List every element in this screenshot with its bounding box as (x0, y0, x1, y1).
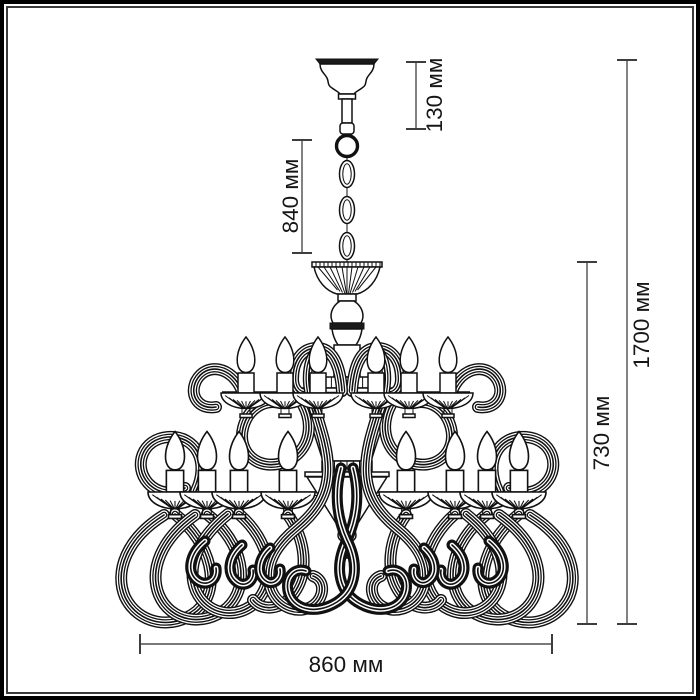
dimension-label-1700: 1700 мм (629, 281, 654, 368)
diagram-page: 130 мм 840 мм 1700 мм 730 мм 860 мм (0, 0, 700, 700)
dimension-diameter: 860 мм (140, 634, 552, 677)
dimension-label-730: 730 мм (589, 396, 614, 471)
dimension-suspension-length: 840 мм (278, 140, 312, 253)
dimension-fixture-height: 730 мм (577, 262, 614, 624)
ribbed-bowl (312, 262, 382, 294)
suspension-assembly (312, 59, 382, 377)
canopy-bell (320, 64, 374, 94)
dimension-label-860: 860 мм (309, 652, 384, 677)
dimension-label-130: 130 мм (422, 58, 447, 133)
chain (340, 161, 355, 260)
hanging-ring (337, 136, 358, 157)
dimension-overall-height: 1700 мм (617, 60, 654, 624)
dimension-label-840: 840 мм (278, 159, 303, 234)
chandelier-diagram: 130 мм 840 мм 1700 мм 730 мм 860 мм (0, 0, 700, 700)
swivel (340, 123, 354, 134)
dimension-canopy-drop: 130 мм (406, 58, 447, 133)
suspension-rod (342, 99, 352, 123)
